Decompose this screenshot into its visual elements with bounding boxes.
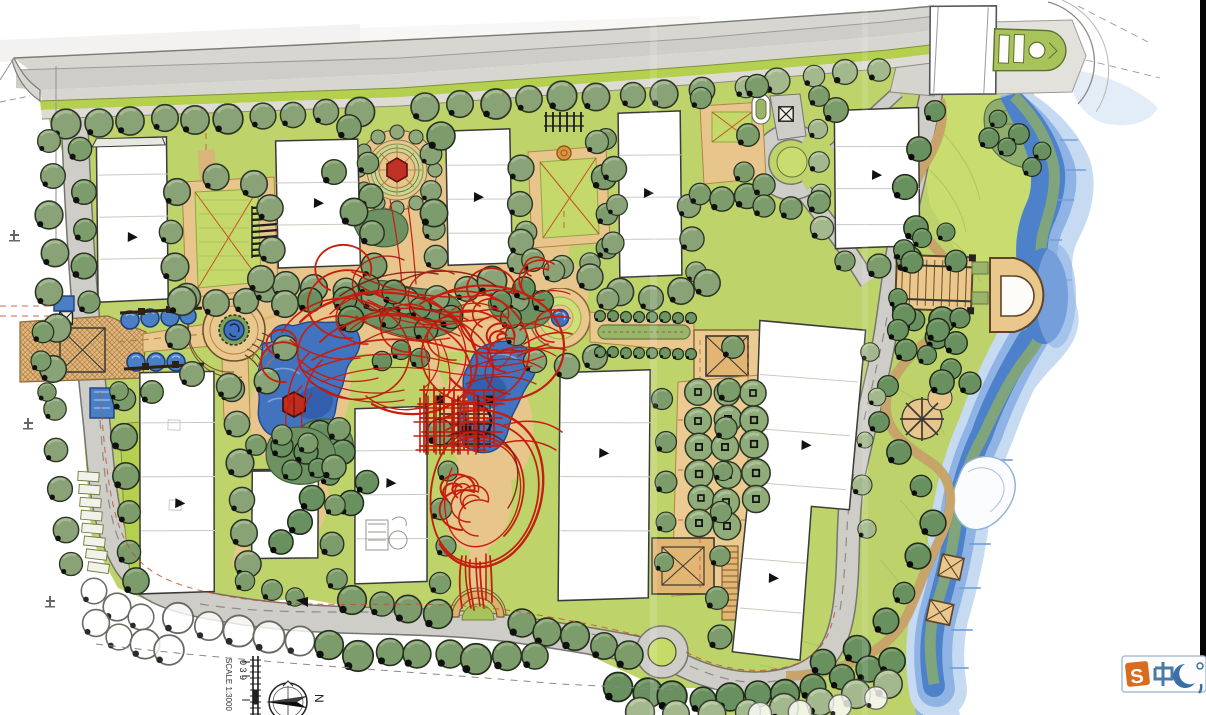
svg-text:SCALE 1:3000: SCALE 1:3000 <box>224 658 233 711</box>
svg-text:N: N <box>312 694 326 703</box>
svg-text:S: S <box>1129 665 1145 688</box>
svg-text:0 3 9: 0 3 9 <box>238 660 248 680</box>
